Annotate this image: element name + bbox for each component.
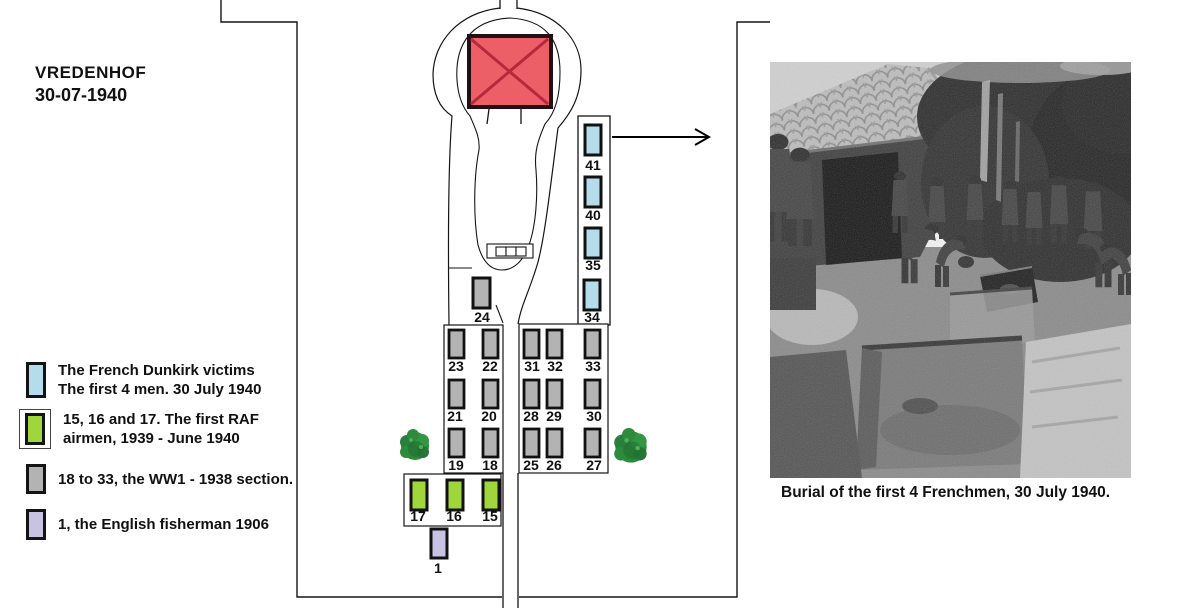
legend-item-raf: 15, 16 and 17. The first RAF airmen, 193… <box>19 409 259 449</box>
svg-text:24: 24 <box>474 309 490 325</box>
grave-40: 40 <box>585 177 601 223</box>
chapel-building <box>469 36 551 124</box>
grave-20: 20 <box>481 380 498 424</box>
legend-swatch-fisherman-icon <box>26 509 46 540</box>
grave-21: 21 <box>447 380 464 424</box>
svg-text:25: 25 <box>523 457 539 473</box>
legend-item-fisherman: 1, the English fisherman 1906 <box>26 509 269 540</box>
legend-item-french: The French Dunkirk victims The first 4 m… <box>26 361 261 399</box>
grave-17: 17 <box>410 480 427 524</box>
svg-text:34: 34 <box>584 309 600 325</box>
grave-23: 23 <box>448 330 464 374</box>
grave-34: 34 <box>584 280 600 325</box>
legend-text-line: 1, the English fisherman 1906 <box>58 515 269 534</box>
svg-text:18: 18 <box>482 457 498 473</box>
svg-text:29: 29 <box>546 408 562 424</box>
grave-32: 32 <box>547 330 563 374</box>
svg-text:19: 19 <box>448 457 464 473</box>
svg-text:33: 33 <box>585 358 601 374</box>
grave-28: 28 <box>523 380 539 424</box>
legend-text-line: 18 to 33, the WW1 - 1938 section. <box>58 470 293 489</box>
photo-caption: Burial of the first 4 Frenchmen, 30 July… <box>781 484 1110 502</box>
svg-text:22: 22 <box>482 358 498 374</box>
legend-text-line: airmen, 1939 - June 1940 <box>63 429 259 448</box>
legend-swatch-ww1-icon <box>26 464 46 494</box>
grave-1: 1 <box>431 529 447 576</box>
map-title: VREDENHOF 30-07-1940 <box>35 62 146 106</box>
svg-text:31: 31 <box>524 358 540 374</box>
svg-text:21: 21 <box>447 408 463 424</box>
svg-text:35: 35 <box>585 257 601 273</box>
grave-24: 24 <box>473 278 490 325</box>
grave-19: 19 <box>448 429 464 473</box>
svg-text:27: 27 <box>586 457 602 473</box>
chapel-legs <box>487 109 521 124</box>
svg-text:15: 15 <box>482 508 498 524</box>
grave-22: 22 <box>482 330 498 374</box>
grave-41: 41 <box>585 125 601 173</box>
legend-swatch-raf-box <box>19 409 51 449</box>
tree-icon-left <box>400 429 429 460</box>
legend-item-ww1: 18 to 33, the WW1 - 1938 section. <box>26 464 293 494</box>
bench-structure <box>487 244 533 258</box>
bottom-path <box>503 473 518 608</box>
svg-text:23: 23 <box>448 358 464 374</box>
svg-text:26: 26 <box>546 457 562 473</box>
tree-icon-right <box>614 428 646 463</box>
direction-arrow-icon <box>612 129 709 145</box>
svg-text:16: 16 <box>446 508 462 524</box>
legend-swatch-french-icon <box>26 362 46 398</box>
grave-29: 29 <box>546 380 562 424</box>
svg-text:17: 17 <box>410 508 426 524</box>
svg-text:20: 20 <box>481 408 497 424</box>
grave-16: 16 <box>446 480 463 524</box>
map-title-date: 30-07-1940 <box>35 84 146 106</box>
grave-25: 25 <box>523 429 539 473</box>
page: 41 40 35 34 24 23 22 <box>0 0 1195 608</box>
legend-text-line: The first 4 men. 30 July 1940 <box>58 380 261 399</box>
map-title-name: VREDENHOF <box>35 62 146 84</box>
svg-text:1: 1 <box>434 560 442 576</box>
burial-photo <box>770 62 1131 478</box>
svg-text:41: 41 <box>585 157 601 173</box>
grave-18: 18 <box>482 429 498 473</box>
grave-15: 15 <box>482 480 499 524</box>
grave-35: 35 <box>585 228 601 273</box>
grave-30: 30 <box>585 380 602 424</box>
svg-text:32: 32 <box>547 358 563 374</box>
grave-31: 31 <box>524 330 540 374</box>
grave-27: 27 <box>585 429 602 473</box>
legend-swatch-raf-icon <box>25 413 45 445</box>
grave-33: 33 <box>585 330 601 374</box>
svg-text:40: 40 <box>585 207 601 223</box>
legend-text-line: The French Dunkirk victims <box>58 361 261 380</box>
entrance-path <box>500 0 517 9</box>
svg-text:28: 28 <box>523 408 539 424</box>
grave-26: 26 <box>546 429 562 473</box>
svg-text:30: 30 <box>586 408 602 424</box>
legend-text-line: 15, 16 and 17. The first RAF <box>63 410 259 429</box>
